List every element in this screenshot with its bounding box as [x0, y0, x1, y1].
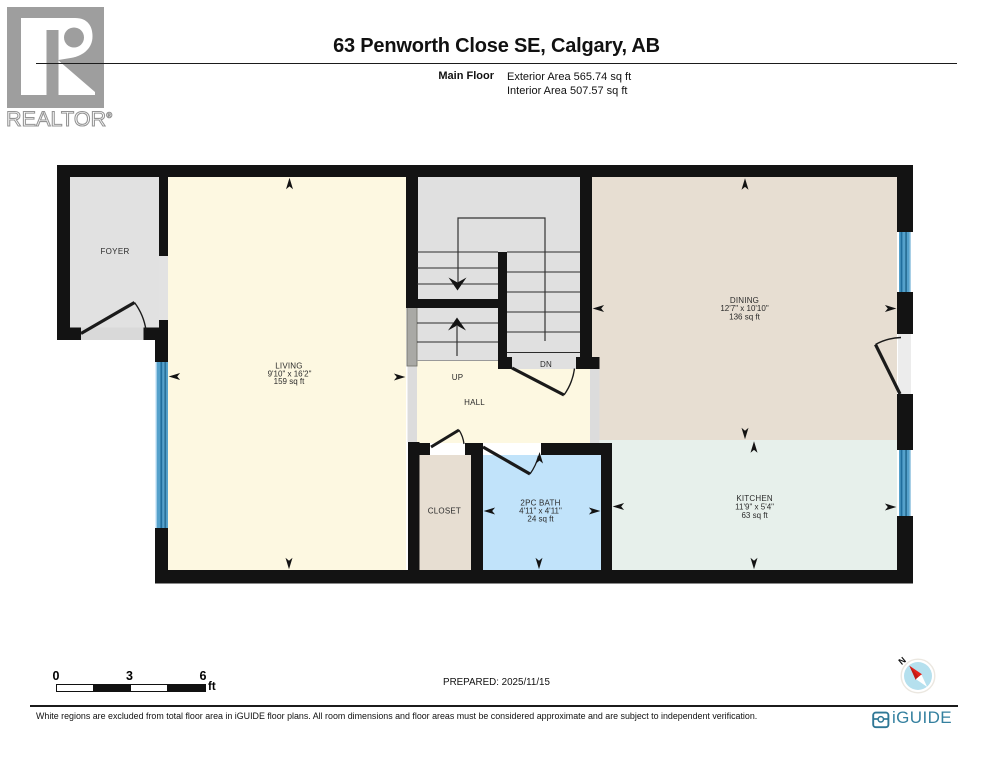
svg-text:24 sq ft: 24 sq ft: [527, 515, 554, 524]
svg-text:136 sq ft: 136 sq ft: [729, 312, 760, 321]
svg-text:159 sq ft: 159 sq ft: [274, 377, 305, 386]
svg-text:CLOSET: CLOSET: [428, 506, 461, 515]
svg-text:DN: DN: [540, 360, 552, 369]
svg-text:HALL: HALL: [464, 398, 485, 407]
svg-text:63 sq ft: 63 sq ft: [741, 511, 768, 520]
svg-text:FOYER: FOYER: [100, 247, 129, 256]
svg-text:UP: UP: [452, 373, 464, 382]
